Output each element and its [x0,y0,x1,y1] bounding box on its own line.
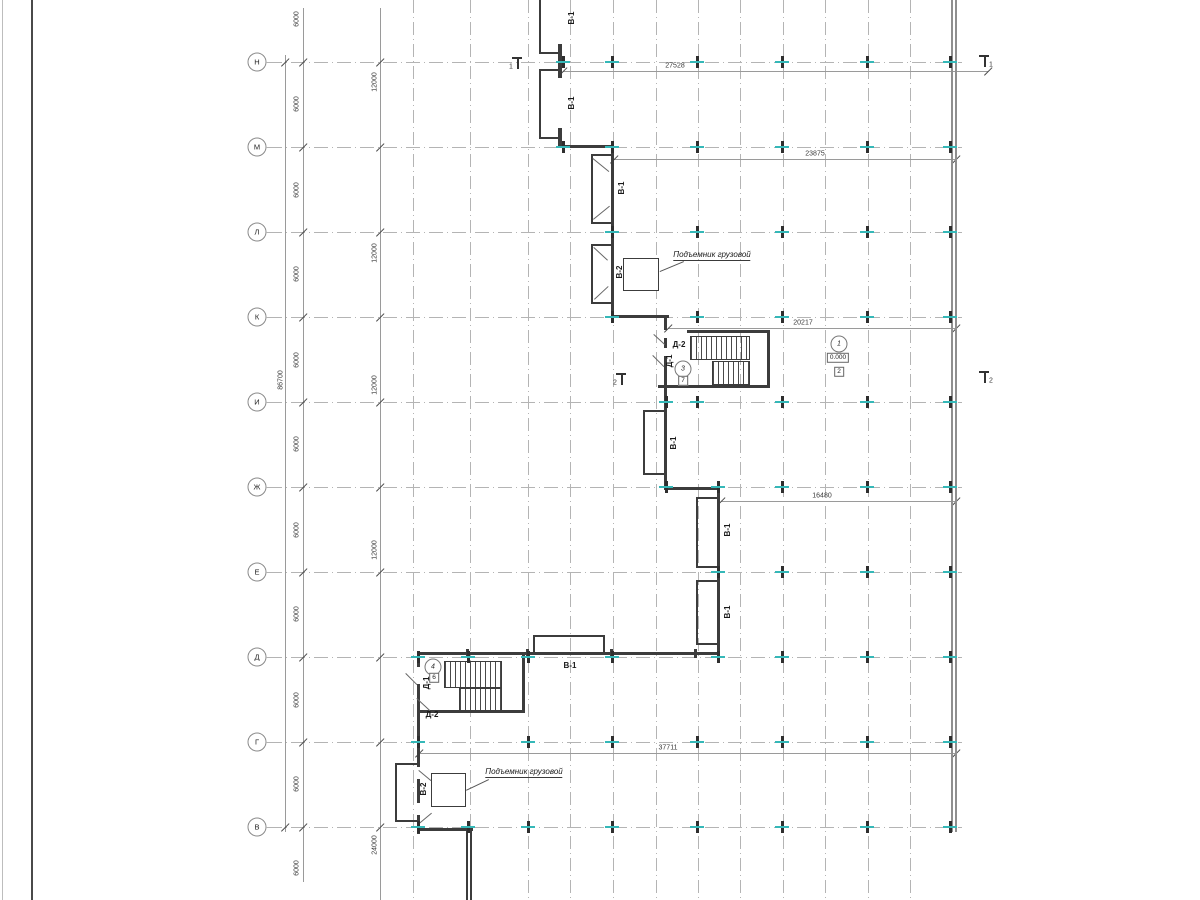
wall-segment [611,235,614,320]
column-accent [690,61,704,63]
grid-row-line [268,402,962,403]
door-swing-line [594,286,609,300]
sheet-frame-line [2,0,3,900]
column-accent [690,826,704,828]
axis-bubble: Л [248,223,267,242]
wall-segment [611,315,669,318]
grid-column-line [613,0,614,900]
axis-bubble-tail [266,402,274,403]
leader-line [660,261,684,272]
opening-type-label: Д-1 [666,355,674,368]
wall-segment [395,820,417,822]
wall-segment [591,302,612,304]
wall-segment [395,763,397,821]
door-swing-line [419,813,432,824]
column-accent [605,146,619,148]
wall-segment [466,831,468,900]
wall-segment [591,244,612,246]
column-accent [605,231,619,233]
wall-segment [694,649,697,658]
column-accent [775,826,789,828]
column-accent [943,401,957,403]
column-accent [605,61,619,63]
axis-bubble-tail [266,572,274,573]
wall-segment [470,831,472,900]
wall-segment [533,635,605,637]
grid-column-line [698,0,699,900]
wall-segment [591,244,593,304]
column-accent [775,316,789,318]
column-accent [711,656,725,658]
dim-text-6000: 6000 [294,436,301,452]
dim-text-total: 86700 [278,370,285,389]
room-tag-box: 2 [834,367,844,377]
column-accent [690,146,704,148]
column-accent [659,486,673,488]
opening-type-label: В-1 [568,97,576,110]
opening-type-label: В-2 [616,266,624,279]
wall-segment [696,643,718,645]
column-accent [711,571,725,573]
column-accent [860,401,874,403]
column-accent [860,316,874,318]
column-accent [659,401,673,403]
grid-column-line [570,0,571,900]
wall-segment [603,635,605,654]
dim-text-span: 12000 [372,243,379,262]
stair-flight [459,688,502,711]
column-accent [943,231,957,233]
wall-segment [658,385,770,388]
door-swing-line [652,355,664,367]
column-accent [690,401,704,403]
opening-type-label: В-1 [564,662,577,670]
column-accent [521,826,535,828]
column-accent [943,656,957,658]
wall-segment [696,580,698,645]
column-accent [860,231,874,233]
column-accent [860,486,874,488]
dim-line [419,753,956,754]
wall-segment [591,154,593,224]
wall-segment [417,828,473,831]
wall-segment [417,652,720,655]
wall-segment [395,763,417,765]
wall-segment [696,497,718,499]
column-accent [556,61,570,63]
grid-column-line [910,0,911,900]
wall-segment [591,222,612,224]
column-accent [860,741,874,743]
wall-segment [539,0,541,54]
column-accent [943,741,957,743]
dim-text-6000: 6000 [294,860,301,876]
column-accent [775,61,789,63]
dim-line [563,71,988,72]
axis-bubble: М [248,138,267,157]
stair-flight [444,661,502,688]
column-accent [605,316,619,318]
door-swing-line [593,206,610,220]
dim-chain-line [285,55,286,832]
grid-column-line [470,0,471,900]
wall-segment [643,410,665,412]
grid-row-line [268,487,962,488]
dim-text-6000: 6000 [294,692,301,708]
column-accent [605,826,619,828]
dim-text-6000: 6000 [294,266,301,282]
column-accent [943,826,957,828]
axis-bubble-tail [266,827,274,828]
wall-segment [687,330,770,333]
column-accent [411,826,425,828]
door-swing-line [405,673,417,685]
column-accent [775,656,789,658]
stair-flight [712,361,750,385]
column-accent [943,571,957,573]
dim-chain-line [380,8,381,900]
column-accent [943,61,957,63]
axis-bubble: В [248,818,267,837]
axis-bubble: Д [248,648,267,667]
axis-bubble: Г [248,733,267,752]
wall-segment [696,497,698,568]
wall-segment [696,566,718,568]
room-tag-box: 6 [429,673,439,683]
wall-segment [664,318,667,330]
section-mark-stem [517,57,519,69]
grid-column-line [783,0,784,900]
column-accent [521,656,535,658]
wall-segment [767,330,770,388]
axis-bubble: И [248,393,267,412]
grid-column-line [656,0,657,900]
dim-text-6000: 6000 [294,96,301,112]
opening-type-label: В-1 [724,606,732,619]
dim-text-6000: 6000 [294,522,301,538]
wall-segment-outer [951,0,953,832]
wall-segment [522,655,525,713]
axis-bubble: Н [248,53,267,72]
dim-line [668,328,956,329]
opening-type-label: Д-2 [426,711,439,719]
dim-text-6000: 6000 [294,11,301,27]
room-number-circle: 1 [831,336,848,353]
column-accent [775,571,789,573]
column-accent [605,741,619,743]
section-mark-stem [621,373,623,385]
grid-column-line [528,0,529,900]
dim-text-6000: 6000 [294,352,301,368]
column-accent [775,401,789,403]
wall-segment [539,69,562,71]
grid-column-line [413,0,414,900]
axis-bubble: Е [248,563,267,582]
column-accent [411,656,425,658]
dim-text-span: 12000 [372,375,379,394]
column-accent [943,486,957,488]
dim-text: 27528 [665,63,684,70]
column-accent [461,826,475,828]
dim-text-6000: 6000 [294,776,301,792]
column-accent [461,656,475,658]
dim-text-span: 12000 [372,72,379,91]
axis-bubble: Ж [248,478,267,497]
wall-segment-outer [955,0,957,832]
axis-bubble-tail [266,657,274,658]
axis-bubble-tail [266,232,274,233]
opening-type-label: В-2 [420,783,428,796]
wall-segment [643,473,665,475]
column-accent [690,741,704,743]
elevator-label: Подъемник грузовой [485,768,562,778]
dim-text: 20217 [793,320,812,327]
axis-bubble-tail [266,742,274,743]
stair-flight [690,336,750,360]
floor-plan-canvas: НМЛКИЖЕДГВ867006000600060006000600060006… [0,0,1200,900]
grid-row-line [268,572,962,573]
column-accent [521,741,535,743]
room-tag-box: 7 [678,376,688,386]
column-accent [943,316,957,318]
section-mark-label: 1 [989,62,993,69]
column-accent [775,486,789,488]
sheet-frame-line [31,0,33,900]
section-mark-label: 2 [989,378,993,385]
door-swing-line [418,770,431,781]
opening-type-label: В-1 [618,182,626,195]
column-accent [556,146,570,148]
column-accent [775,231,789,233]
axis-bubble-tail [266,317,274,318]
dim-text-span: 24000 [372,835,379,854]
section-mark-label: 1 [509,64,513,71]
axis-bubble: К [248,308,267,327]
column-accent [690,231,704,233]
wall-segment [533,635,535,654]
grid-column-line [825,0,826,900]
section-mark-stem [984,371,986,383]
dim-text: 37711 [659,745,678,752]
grid-column-line [868,0,869,900]
dim-text: 16480 [812,493,831,500]
column-accent [943,146,957,148]
grid-column-line [740,0,741,900]
section-mark-label: 2 [613,380,617,387]
elevation-mark: 0.000 [827,353,849,363]
column-accent [775,146,789,148]
column-accent [860,826,874,828]
column-accent [860,61,874,63]
elevator-label: Подъемник грузовой [673,251,750,261]
dim-chain-line [303,8,304,882]
dim-text-6000: 6000 [294,606,301,622]
dim-line [721,501,956,502]
column-accent [860,656,874,658]
column-accent [711,486,725,488]
column-accent [860,571,874,573]
column-accent [605,656,619,658]
elevator-shaft [431,773,466,807]
opening-type-label: Д-2 [673,341,686,349]
axis-bubble-tail [266,62,274,63]
column-accent [690,316,704,318]
wall-segment [591,154,612,156]
column-accent [860,146,874,148]
axis-bubble-tail [266,487,274,488]
wall-segment [696,580,718,582]
wall-segment [664,402,667,490]
opening-type-label: В-1 [568,12,576,25]
opening-type-label: В-1 [670,437,678,450]
section-mark-stem [984,55,986,67]
dim-text: 23875 [805,151,824,158]
column-accent [411,741,425,743]
dim-text-span: 12000 [372,540,379,559]
dim-text-6000: 6000 [294,182,301,198]
dim-line [614,159,956,160]
column-accent [775,741,789,743]
wall-segment [539,69,541,139]
wall-segment [643,410,645,475]
opening-type-label: В-1 [724,524,732,537]
axis-bubble-tail [266,147,274,148]
elevator-shaft [623,258,659,291]
door-swing-line [593,247,608,261]
door-swing-line [592,158,609,172]
